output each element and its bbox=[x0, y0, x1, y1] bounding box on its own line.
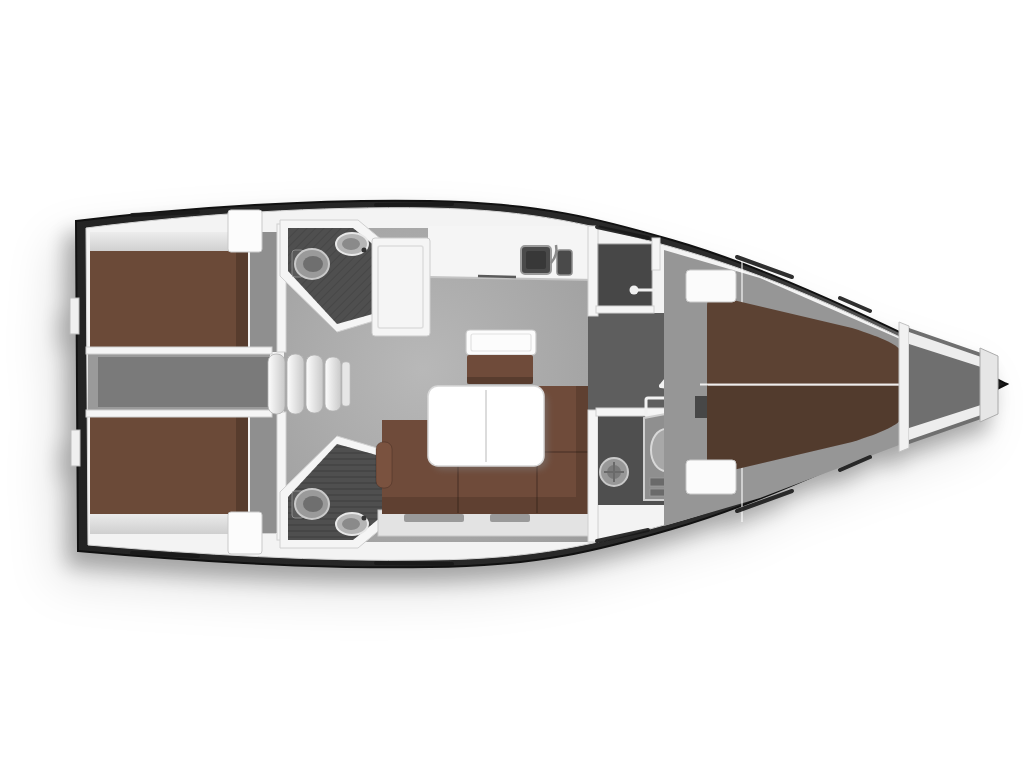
faucet bbox=[362, 248, 367, 253]
sink-basin bbox=[526, 251, 546, 269]
toilet bbox=[600, 458, 628, 486]
locker bbox=[228, 512, 262, 554]
toilet bbox=[292, 249, 329, 279]
corner-cabinet-starboard bbox=[686, 460, 736, 494]
washbasin bbox=[336, 513, 368, 535]
saloon-wall-upper bbox=[588, 226, 598, 316]
counter-handle bbox=[478, 276, 516, 277]
step-cap bbox=[342, 362, 350, 406]
corridor-wall-top bbox=[86, 347, 272, 354]
wardrobe-interior bbox=[598, 244, 652, 308]
hatch-slit bbox=[376, 204, 452, 205]
stove bbox=[557, 250, 572, 275]
step-1 bbox=[268, 354, 285, 414]
step-4 bbox=[325, 357, 341, 411]
hatch-slit bbox=[376, 563, 452, 564]
transom-step-top bbox=[70, 298, 79, 334]
bow-bulkhead bbox=[899, 322, 909, 452]
wardrobe-wall bbox=[596, 306, 654, 313]
berth-edge-shade bbox=[236, 413, 248, 514]
toilet-seat bbox=[303, 256, 323, 272]
passage-wall-stub bbox=[652, 238, 660, 270]
wardrobe bbox=[596, 244, 655, 313]
toilet bbox=[292, 489, 329, 519]
anchor-locker bbox=[899, 322, 998, 452]
settee-base-fitting bbox=[404, 514, 464, 522]
washbasin bbox=[336, 233, 368, 255]
saloon-wall-lower bbox=[588, 410, 598, 542]
yacht-floor-plan bbox=[0, 0, 1024, 768]
canvas bbox=[0, 0, 1024, 768]
corridor-wall-bottom bbox=[86, 410, 272, 417]
basin-inner bbox=[342, 518, 360, 530]
berth-edge-shade bbox=[236, 251, 248, 352]
corridor-inner bbox=[98, 357, 270, 407]
double-berth bbox=[90, 251, 248, 352]
toilet-seat bbox=[303, 496, 323, 512]
settee-armrest bbox=[376, 442, 392, 488]
step-2 bbox=[287, 354, 304, 414]
companionway bbox=[268, 354, 350, 414]
aft-corridor bbox=[86, 347, 272, 417]
bow-fitting bbox=[980, 348, 998, 422]
basin-inner bbox=[342, 238, 360, 250]
transom-step-bottom bbox=[71, 430, 80, 466]
counter-left-run bbox=[372, 238, 430, 336]
corner-cabinet-port bbox=[686, 270, 736, 302]
settee-base-fitting-2 bbox=[490, 514, 530, 522]
double-berth bbox=[90, 413, 248, 514]
step-3 bbox=[306, 355, 323, 413]
aft-cabin-starboard bbox=[90, 412, 286, 554]
locker bbox=[228, 210, 262, 252]
seat-chest-base-shade bbox=[467, 377, 533, 384]
faucet bbox=[362, 516, 367, 521]
